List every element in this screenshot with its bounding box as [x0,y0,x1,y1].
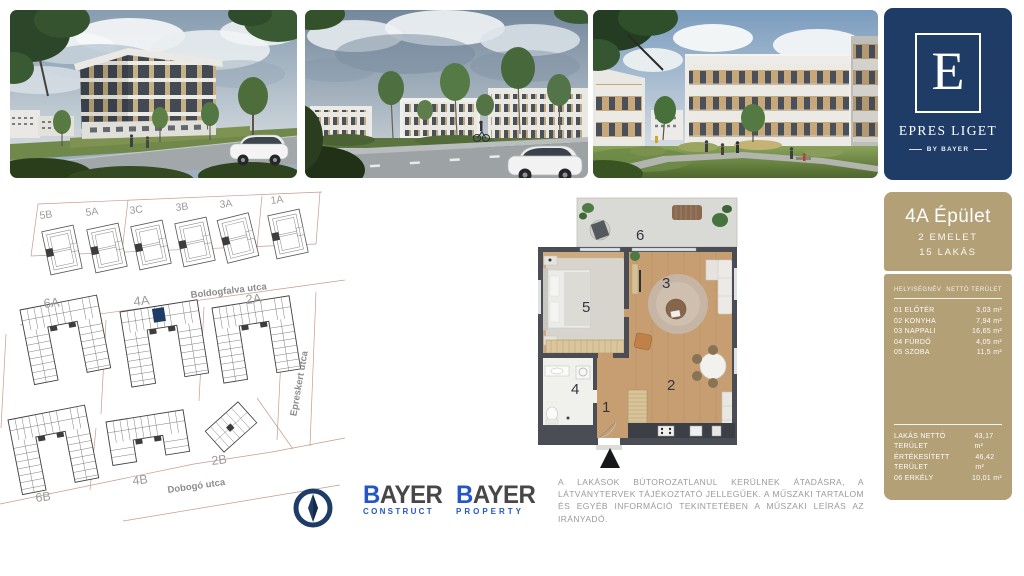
floor-plan: 6 5 3 4 1 2 [536,192,742,478]
brand-byline: BY BAYER [909,146,987,153]
label-4a: 4A [133,292,151,309]
building-unit-count: 15 LAKÁS [919,247,976,258]
label-6a: 6A [43,294,61,311]
room-name: 05 SZOBA [894,348,930,359]
room-number-hall: 1 [602,399,610,416]
room-name: 01 ELŐTÉR [894,306,934,317]
site-plan: 5B 5A 3C 3B 3A 1A 6A 4A 2A 6B 4B 2B Bold… [0,188,345,528]
label-5b: 5B [39,209,53,222]
room-area: 4,05 m² [976,338,1002,349]
table-row: 03 NAPPALI 16,65 m² [894,327,1002,338]
bayer-wordmark: BAYER [363,484,442,507]
label-2b: 2B [211,452,228,468]
table-row: 02 KONYHA 7,94 m² [894,317,1002,328]
table-totals: LAKÁS NETTÓ TERÜLET 43,17 m² ÉRTÉKESÍTET… [894,424,1002,485]
building-floor: 2 EMELET [918,232,978,243]
label-3a: 3A [219,198,233,211]
label-3b: 3B [175,201,189,214]
render-photo-2-graphic [305,10,588,178]
room-number-living: 3 [662,275,670,292]
room-number-balcony: 6 [636,227,644,244]
total-name: ÉRTÉKESÍTETT TERÜLET [894,453,975,474]
bayer-b-letter: B [363,481,380,509]
brand-name: EPRES LIGET [899,123,997,139]
total-name: LAKÁS NETTÓ TERÜLET [894,432,974,453]
bayer-property-logo: BAYER PROPERTY [456,484,535,516]
label-1a: 1A [270,194,284,207]
total-row: ÉRTÉKESÍTETT TERÜLET 46,42 m² [894,453,1002,474]
room-area: 7,94 m² [976,317,1002,328]
street-dobogo: Dobogó utca [167,477,227,496]
room-name: 02 KONYHA [894,317,936,328]
room-area: 3,03 m² [976,306,1002,317]
total-area: 10,01 m² [972,474,1002,485]
room-area: 11,5 m² [977,348,1002,359]
total-area: 46,42 m² [975,453,1002,474]
col-net-area: NETTÓ TERÜLET [946,287,1002,293]
render-photo-3-graphic [593,10,878,178]
render-photo-road-view [305,10,588,178]
label-6b: 6B [35,489,52,505]
col-room-name: HELYISÉGNÉV [894,287,941,293]
bayer-rest-letters: AYER [380,481,442,509]
bayer-b-letter: B [456,481,473,509]
room-name: 04 FÜRDŐ [894,338,931,349]
room-area-table-card: HELYISÉGNÉV NETTÓ TERÜLET 01 ELŐTÉR 3,03… [884,274,1012,500]
total-area: 43,17 m² [974,432,1002,453]
render-photo-1-graphic [10,10,297,178]
total-row: LAKÁS NETTÓ TERÜLET 43,17 m² [894,432,1002,453]
table-header: HELYISÉGNÉV NETTÓ TERÜLET [894,287,1002,299]
compass-icon [291,486,335,530]
byline-dash-right [974,149,987,150]
table-row: 04 FÜRDŐ 4,05 m² [894,338,1002,349]
bayer-wordmark: BAYER [456,484,535,507]
building-title: 4A Épület [905,206,991,228]
label-4b: 4B [132,472,149,488]
byline-dash-left [909,149,922,150]
brand-logo-card: E EPRES LIGET BY BAYER [884,8,1012,180]
table-row: 05 SZOBA 11,5 m² [894,348,1002,359]
room-number-bedroom: 5 [582,299,590,316]
render-photo-street-view [10,10,297,178]
byline-text: BY BAYER [927,146,969,153]
brand-letter: E [932,44,965,98]
room-number-bathroom: 4 [571,381,579,398]
room-name: 03 NAPPALI [894,327,936,338]
label-3c: 3C [129,203,144,217]
bayer-rest-letters: AYER [473,481,535,509]
north-arrow-icon [600,448,620,468]
building-header-card: 4A Épület 2 EMELET 15 LAKÁS [884,192,1012,271]
room-number-kitchen: 2 [667,377,675,394]
disclaimer-text: A LAKÁSOK BÚTOROZATLANUL KERÜLNEK ÁTADÁS… [558,476,864,525]
highlighted-unit-4a [152,307,166,323]
brand-monogram: E [915,33,981,113]
total-name: 06 ERKÉLY [894,474,934,485]
table-row: 01 ELŐTÉR 3,03 m² [894,306,1002,317]
total-row: 06 ERKÉLY 10,01 m² [894,474,1002,485]
bayer-construct-logo: BAYER CONSTRUCT [363,484,442,516]
label-5a: 5A [85,206,99,219]
render-photo-courtyard-view [593,10,878,178]
room-area: 16,65 m² [972,327,1002,338]
